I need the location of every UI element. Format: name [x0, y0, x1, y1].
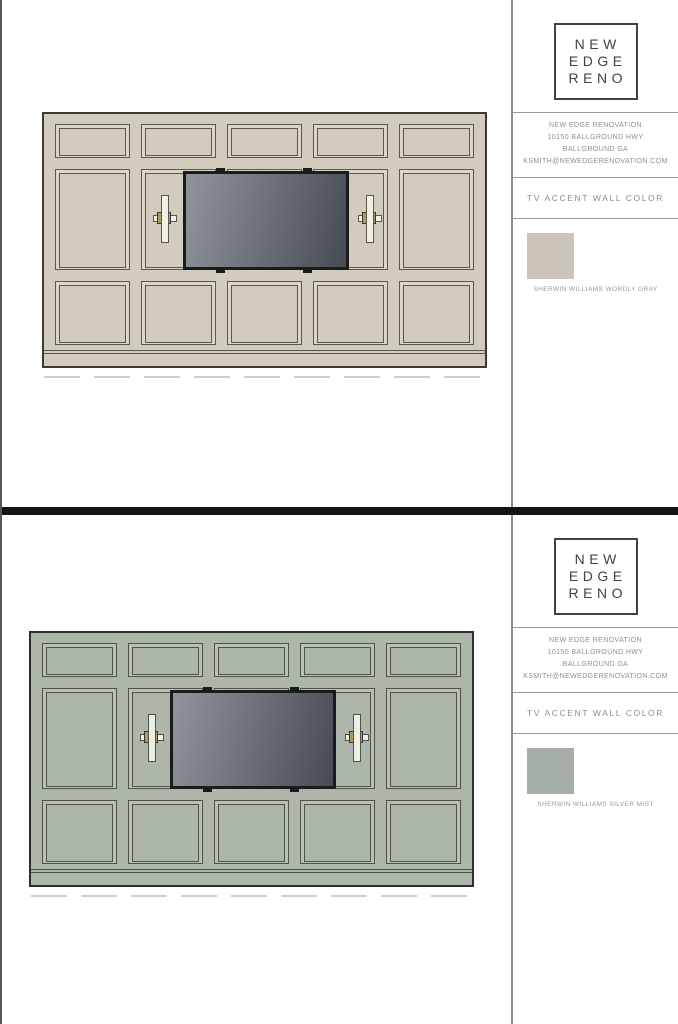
contact-info: NEW EDGE RENOVATION 10150 BALLGROUND HWY… [513, 113, 678, 178]
section-title: TV ACCENT WALL COLOR [513, 693, 678, 734]
wall-shadow [31, 895, 472, 897]
sconce-backplate [362, 212, 376, 224]
logo-area: NEW EDGE RENO [513, 0, 678, 113]
paint-swatch [527, 748, 574, 794]
contact-line: KSMITH@NEWEDGERENOVATION.COM [513, 671, 678, 683]
paint-swatch [527, 233, 574, 279]
tv [170, 690, 336, 789]
logo-line: EDGE [564, 568, 626, 585]
design-option-silver-mist: NEW EDGE RENO NEW EDGE RENOVATION 10150 … [2, 515, 678, 1024]
wall-panel [386, 800, 461, 864]
wall-panel [55, 169, 130, 270]
tv-screen [173, 693, 333, 786]
wall-panel [214, 800, 289, 864]
wall-rendering [42, 112, 487, 368]
info-sidebar: NEW EDGE RENO NEW EDGE RENOVATION 10150 … [511, 0, 678, 507]
sconce-backplate [157, 212, 171, 224]
design-proof-page: NEW EDGE RENO NEW EDGE RENOVATION 10150 … [0, 0, 678, 1024]
wall-panel [42, 688, 117, 789]
wall-panel [42, 643, 117, 677]
tv [183, 171, 349, 270]
wall-panel [399, 281, 474, 345]
wall-panel [386, 688, 461, 789]
tv-screen [186, 174, 346, 267]
contact-line: KSMITH@NEWEDGERENOVATION.COM [513, 156, 678, 168]
wall-panel [55, 124, 130, 158]
new-edge-reno-logo: NEW EDGE RENO [554, 23, 638, 100]
logo-line: EDGE [564, 53, 626, 70]
wall-panel [300, 643, 375, 677]
wall-panel [386, 643, 461, 677]
wall-panel [141, 124, 216, 158]
section-title: TV ACCENT WALL COLOR [513, 178, 678, 219]
tv-accent-wall [42, 112, 487, 368]
swatch-area: SHERWIN WILLIAMS SILVER MIST [513, 748, 678, 808]
contact-info: NEW EDGE RENOVATION 10150 BALLGROUND HWY… [513, 628, 678, 693]
logo-line: RENO [564, 585, 627, 602]
tv-accent-wall [29, 631, 474, 887]
wall-shadow [44, 376, 485, 378]
sconce-backplate [349, 731, 363, 743]
section-divider [2, 507, 678, 515]
contact-line: 10150 BALLGROUND HWY [513, 647, 678, 659]
baseboard [44, 350, 485, 366]
logo-line: NEW [570, 36, 621, 53]
swatch-area: SHERWIN WILLIAMS WORDLY GRAY [513, 233, 678, 293]
sconce-backplate [144, 731, 158, 743]
wall-panel [227, 281, 302, 345]
wall-panel [399, 124, 474, 158]
design-option-worldly-gray: NEW EDGE RENO NEW EDGE RENOVATION 10150 … [2, 0, 678, 507]
baseboard [31, 869, 472, 885]
wall-rendering [29, 631, 474, 887]
paint-swatch-label: SHERWIN WILLIAMS WORDLY GRAY [513, 286, 678, 293]
wall-panel [55, 281, 130, 345]
wall-panel [313, 124, 388, 158]
contact-line: BALLGROUND GA [513, 144, 678, 156]
wall-sconce-left [140, 714, 162, 760]
wall-sconce-right [358, 195, 380, 241]
wall-sconce-left [153, 195, 175, 241]
logo-area: NEW EDGE RENO [513, 515, 678, 628]
wall-panel [141, 281, 216, 345]
new-edge-reno-logo: NEW EDGE RENO [554, 538, 638, 615]
wall-sconce-right [345, 714, 367, 760]
wall-panel [227, 124, 302, 158]
wall-panel [214, 643, 289, 677]
info-sidebar: NEW EDGE RENO NEW EDGE RENOVATION 10150 … [511, 515, 678, 1024]
contact-line: NEW EDGE RENOVATION [513, 120, 678, 132]
logo-line: RENO [564, 70, 627, 87]
wall-panel [128, 643, 203, 677]
wall-panel [399, 169, 474, 270]
wall-panel [313, 281, 388, 345]
logo-line: NEW [570, 551, 621, 568]
contact-line: NEW EDGE RENOVATION [513, 635, 678, 647]
wall-panel [300, 800, 375, 864]
wall-panel [128, 800, 203, 864]
contact-line: BALLGROUND GA [513, 659, 678, 671]
wall-panel [42, 800, 117, 864]
paint-swatch-label: SHERWIN WILLIAMS SILVER MIST [513, 801, 678, 808]
contact-line: 10150 BALLGROUND HWY [513, 132, 678, 144]
